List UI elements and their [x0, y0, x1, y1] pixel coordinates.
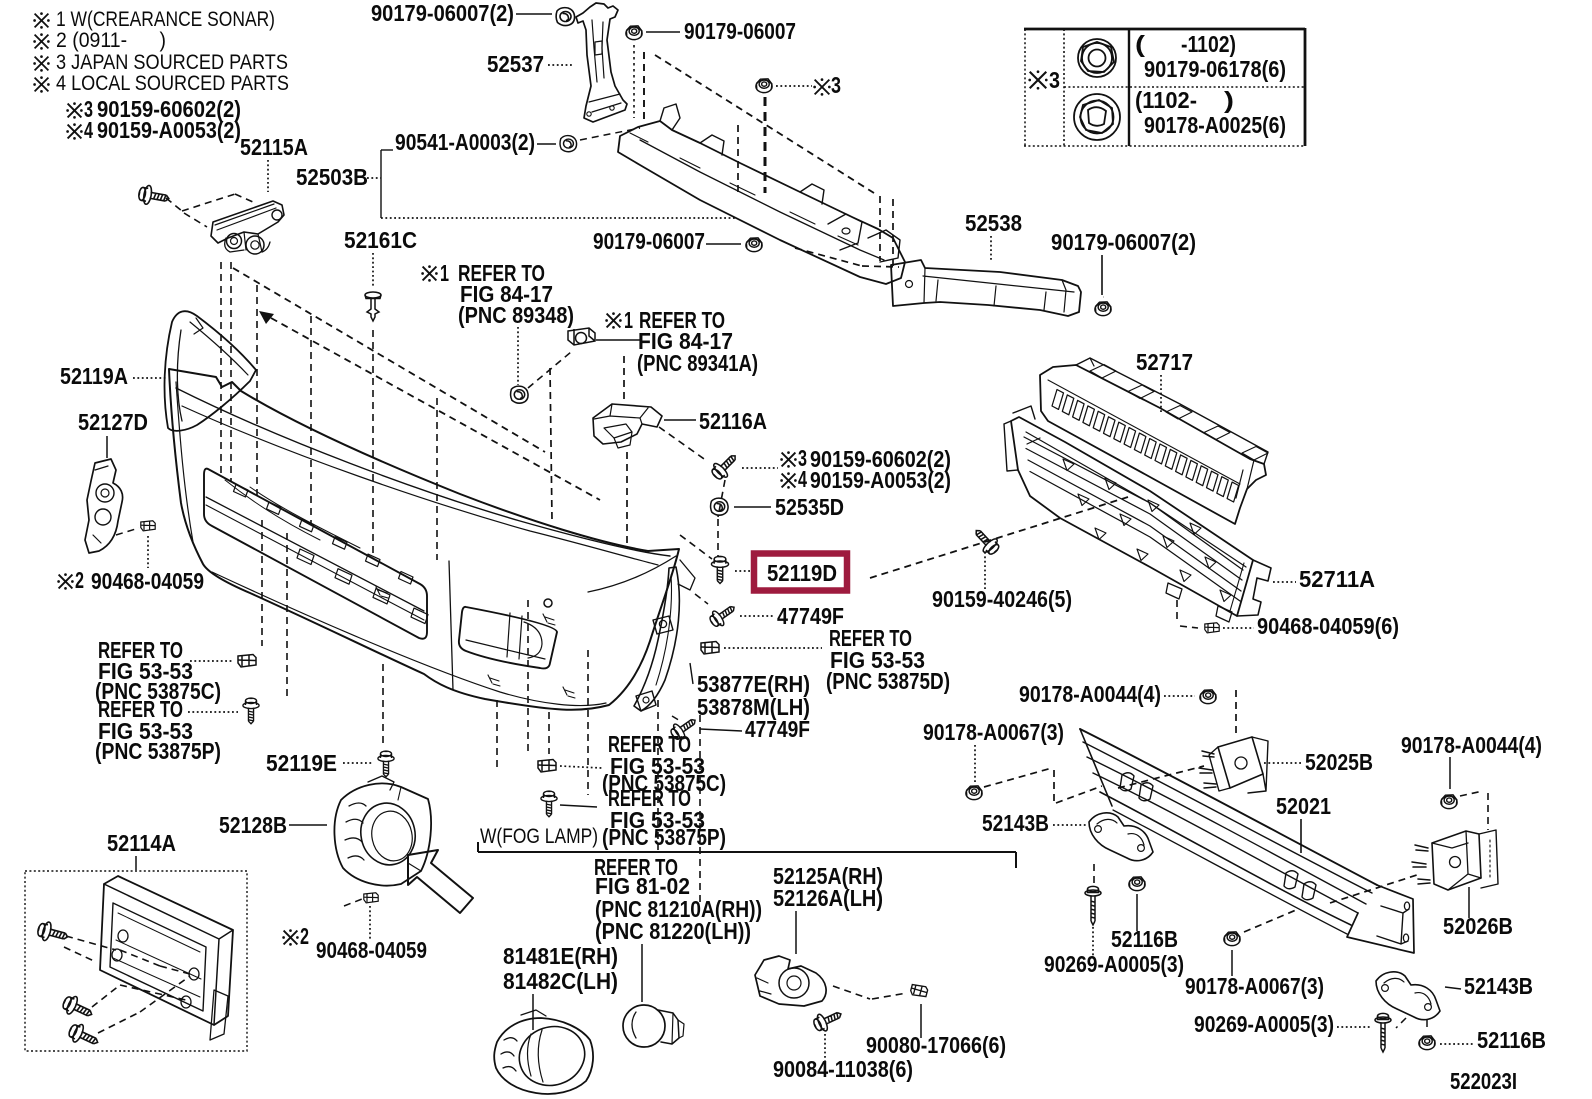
svg-text:2: 2	[300, 923, 309, 949]
svg-text:90179-06007: 90179-06007	[593, 228, 705, 254]
svg-text:52116B: 52116B	[1111, 926, 1178, 952]
svg-text:-1102): -1102)	[1181, 31, 1236, 57]
svg-text:81482C(LH): 81482C(LH)	[503, 968, 618, 994]
svg-text:52116B: 52116B	[1477, 1027, 1546, 1053]
svg-text:90178-A0025(6): 90178-A0025(6)	[1144, 112, 1286, 138]
svg-text:52021: 52021	[1276, 793, 1331, 819]
svg-text:52535D: 52535D	[775, 494, 844, 520]
svg-text:90084-11038(6): 90084-11038(6)	[773, 1056, 913, 1082]
svg-text:2: 2	[75, 567, 84, 593]
svg-text:52538: 52538	[965, 210, 1022, 236]
svg-text:90159-A0053(2): 90159-A0053(2)	[810, 467, 951, 493]
svg-text:90179-06007(2): 90179-06007(2)	[371, 0, 514, 26]
svg-text:52026B: 52026B	[1443, 913, 1513, 939]
svg-text:3 JAPAN SOURCED PARTS: 3 JAPAN SOURCED PARTS	[56, 51, 288, 74]
svg-text:52161C: 52161C	[344, 227, 417, 253]
svg-text:90468-04059: 90468-04059	[316, 937, 427, 963]
svg-text:(: (	[1135, 31, 1145, 57]
svg-text:90468-04059: 90468-04059	[91, 568, 204, 594]
svg-text:52711A: 52711A	[1299, 566, 1375, 592]
svg-text:522023I: 522023I	[1450, 1068, 1517, 1094]
svg-text:(PNC 53875P): (PNC 53875P)	[95, 738, 221, 764]
svg-text:90541-A0003(2): 90541-A0003(2)	[395, 129, 535, 155]
svg-text:90178-A0067(3): 90178-A0067(3)	[923, 719, 1064, 745]
svg-text:52025B: 52025B	[1305, 749, 1373, 775]
svg-text:(1102-: (1102-	[1135, 87, 1197, 113]
svg-text:4: 4	[84, 117, 93, 143]
svg-text:1: 1	[440, 260, 449, 286]
svg-text:4 LOCAL SOURCED PARTS: 4 LOCAL SOURCED PARTS	[56, 72, 289, 95]
svg-text:52717: 52717	[1136, 349, 1193, 375]
svg-text:(PNC 81220(LH)): (PNC 81220(LH))	[595, 918, 751, 944]
svg-text:47749F: 47749F	[745, 716, 810, 742]
svg-text:90468-04059(6): 90468-04059(6)	[1257, 613, 1399, 639]
svg-text:52115A: 52115A	[240, 134, 308, 160]
svg-text:90159-40246(5): 90159-40246(5)	[932, 586, 1072, 612]
svg-text:90269-A0005(3): 90269-A0005(3)	[1044, 951, 1184, 977]
svg-text:52126A(LH): 52126A(LH)	[773, 885, 883, 911]
svg-text:(PNC 53875P): (PNC 53875P)	[602, 824, 726, 850]
svg-text:52128B: 52128B	[219, 812, 287, 838]
svg-text:3: 3	[1049, 67, 1060, 93]
svg-text:52143B: 52143B	[982, 810, 1049, 836]
svg-text:90179-06007: 90179-06007	[684, 18, 796, 44]
svg-text:90159-A0053(2): 90159-A0053(2)	[97, 117, 241, 143]
svg-text:90269-A0005(3): 90269-A0005(3)	[1194, 1011, 1334, 1037]
svg-text:): )	[1224, 87, 1234, 113]
svg-text:90178-A0067(3): 90178-A0067(3)	[1185, 973, 1324, 999]
svg-text:(PNC 89348): (PNC 89348)	[458, 302, 574, 328]
svg-text:3: 3	[831, 72, 841, 98]
svg-text:2 (0911- ): 2 (0911- )	[56, 29, 166, 52]
svg-text:90178-A0044(4): 90178-A0044(4)	[1401, 732, 1542, 758]
svg-text:(PNC 53875D): (PNC 53875D)	[826, 668, 950, 694]
svg-text:52503B: 52503B	[296, 164, 368, 190]
svg-text:52119D: 52119D	[767, 560, 837, 586]
svg-text:90178-A0044(4): 90178-A0044(4)	[1019, 681, 1161, 707]
svg-text:81481E(RH): 81481E(RH)	[503, 943, 618, 969]
svg-text:W(FOG LAMP): W(FOG LAMP)	[480, 825, 598, 848]
svg-text:52116A: 52116A	[699, 408, 767, 434]
svg-text:52114A: 52114A	[107, 830, 176, 856]
svg-text:52119E: 52119E	[266, 750, 337, 776]
svg-text:4: 4	[798, 466, 807, 492]
svg-text:52119A: 52119A	[60, 363, 128, 389]
svg-text:1: 1	[624, 307, 633, 333]
svg-text:90179-06007(2): 90179-06007(2)	[1051, 229, 1196, 255]
svg-text:52143B: 52143B	[1464, 973, 1533, 999]
svg-text:1 W(CREARANCE SONAR): 1 W(CREARANCE SONAR)	[56, 8, 275, 31]
svg-text:52537: 52537	[487, 51, 544, 77]
svg-text:(PNC 89341A): (PNC 89341A)	[637, 350, 758, 376]
svg-text:90179-06178(6): 90179-06178(6)	[1144, 56, 1286, 82]
svg-text:90080-17066(6): 90080-17066(6)	[866, 1032, 1006, 1058]
svg-text:52127D: 52127D	[78, 409, 148, 435]
